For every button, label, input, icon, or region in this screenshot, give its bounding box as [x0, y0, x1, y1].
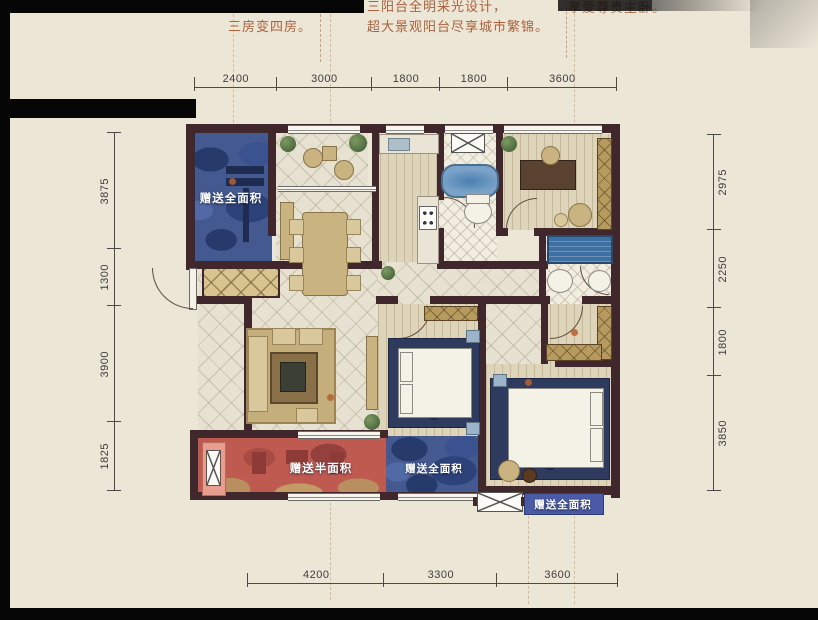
- window-symbol: [477, 492, 523, 512]
- gift-label-north-yard: 赠送全面积: [192, 190, 270, 206]
- nightstand: [493, 374, 507, 387]
- wall: [268, 124, 276, 236]
- dimension-chain-top: 2400 3000 1800 1800 3600: [195, 70, 617, 88]
- sofa: [248, 336, 268, 412]
- plant: [280, 136, 296, 152]
- gift-label-tag: 赠送全面积: [528, 497, 598, 512]
- slogan-left: 三房变四房。: [228, 16, 312, 35]
- stove: [419, 206, 437, 230]
- water-heater-symbol: [206, 450, 221, 486]
- dimension-segment: 3600: [508, 70, 617, 87]
- dimension-segment: 1825: [96, 422, 114, 491]
- scan-band-bottom: [0, 608, 818, 620]
- wardrobe: [597, 138, 612, 230]
- dimension-segment: 3850: [714, 376, 732, 491]
- terrace-chair: [334, 160, 354, 180]
- dimension-segment: 1800: [372, 70, 440, 87]
- dimension-segment: 1300: [96, 249, 114, 306]
- shower-tub: [547, 235, 613, 264]
- slogan-mid-line2: 超大景观阳台尽享城市繁锦。: [367, 16, 549, 35]
- terrace-table: [322, 146, 337, 161]
- armchair: [272, 328, 296, 345]
- lounge-chair: [568, 203, 592, 227]
- dining-chair: [346, 247, 361, 263]
- entry-door-arc: [152, 268, 193, 309]
- yard-decor: [226, 166, 264, 174]
- dimension-chain-left: 3875 1300 3900 1825: [96, 133, 115, 491]
- scan-band-top: [652, 0, 762, 11]
- dimension-segment: 3600: [497, 566, 618, 583]
- dimension-segment: 2400: [195, 70, 277, 87]
- floorplan-page: 三房变四房。 三阳台全明采光设计， 超大景观阳台尽享城市繁锦。 孝爱尊贵主卧。: [0, 0, 818, 620]
- balcony-decor: [252, 452, 266, 474]
- coffee-table-top: [280, 362, 306, 392]
- scan-shadow: [750, 0, 818, 48]
- window: [288, 493, 380, 501]
- dimension-segment: 3900: [96, 306, 114, 423]
- window-symbol-tab: [473, 497, 477, 506]
- wall: [376, 296, 398, 304]
- wall: [555, 360, 612, 367]
- washer-symbol: [451, 133, 485, 153]
- dimension-segment: 3300: [384, 566, 497, 583]
- dining-chair: [289, 247, 304, 263]
- closet-hall-floor: [486, 304, 541, 364]
- desk-chair: [541, 146, 560, 165]
- window: [504, 125, 602, 134]
- wardrobe: [424, 306, 478, 321]
- wall: [582, 296, 612, 304]
- washbasin: [588, 270, 611, 292]
- wall: [437, 261, 548, 269]
- guide-dot: [571, 329, 578, 336]
- wall: [190, 296, 252, 304]
- pillow: [590, 392, 603, 426]
- scan-band-left: [0, 0, 10, 620]
- plant: [501, 136, 517, 152]
- sliding-door: [278, 186, 376, 192]
- dimension-chain-right: 2975 2250 1800 3850: [713, 135, 732, 491]
- gift-label-mid-balcony: 赠送全面积: [402, 461, 466, 476]
- dining-chair: [346, 275, 361, 291]
- dimension-segment: 4200: [248, 566, 384, 583]
- guide-dot: [229, 178, 236, 185]
- window: [386, 125, 424, 134]
- entry-tile-strip: [202, 264, 280, 298]
- wall: [190, 436, 198, 500]
- window: [288, 125, 360, 134]
- toilet-tank: [466, 194, 490, 204]
- scan-band-left-mid: [0, 99, 196, 118]
- pillow: [400, 384, 413, 414]
- gift-label-south-balcony: 赠送半面积: [286, 460, 356, 476]
- dining-table: [302, 212, 348, 296]
- side-table: [522, 468, 537, 483]
- dining-chair: [289, 219, 304, 235]
- dining-chair: [289, 275, 304, 291]
- nightstand: [466, 422, 480, 435]
- window: [298, 431, 380, 439]
- guide-dot: [525, 379, 532, 386]
- pouf: [296, 408, 318, 423]
- wall: [611, 124, 620, 498]
- scan-band-top: [0, 0, 364, 13]
- dimension-segment: 3000: [277, 70, 372, 87]
- dimension-segment: 2250: [714, 230, 732, 308]
- plant: [364, 414, 380, 430]
- dimension-segment: 2975: [714, 135, 732, 230]
- dimension-segment: 1800: [714, 308, 732, 376]
- wall: [372, 130, 379, 265]
- terrace-chair: [303, 148, 323, 168]
- slogan-mid-line1: 三阳台全明采光设计，: [367, 0, 507, 15]
- armchair: [299, 328, 323, 345]
- wall: [430, 296, 550, 304]
- bedroom-chair: [498, 460, 520, 482]
- kitchen-sink: [388, 138, 410, 151]
- plant: [381, 266, 395, 280]
- pillow: [400, 352, 413, 382]
- toilet: [547, 269, 573, 293]
- plant: [349, 134, 367, 152]
- dimension-chain-bottom: 4200 3300 3600: [248, 566, 618, 584]
- bathtub: [441, 164, 499, 198]
- guide-dot: [327, 394, 334, 401]
- wardrobe: [546, 344, 602, 361]
- dimension-segment: 1800: [440, 70, 508, 87]
- dining-chair: [346, 219, 361, 235]
- nightstand: [466, 330, 480, 343]
- tv-cabinet: [366, 336, 378, 410]
- wall: [496, 228, 508, 236]
- pillow: [590, 428, 603, 462]
- dimension-segment: 3875: [96, 133, 114, 249]
- scan-band-top: [558, 0, 652, 11]
- pouf: [554, 213, 568, 227]
- wall: [539, 232, 546, 304]
